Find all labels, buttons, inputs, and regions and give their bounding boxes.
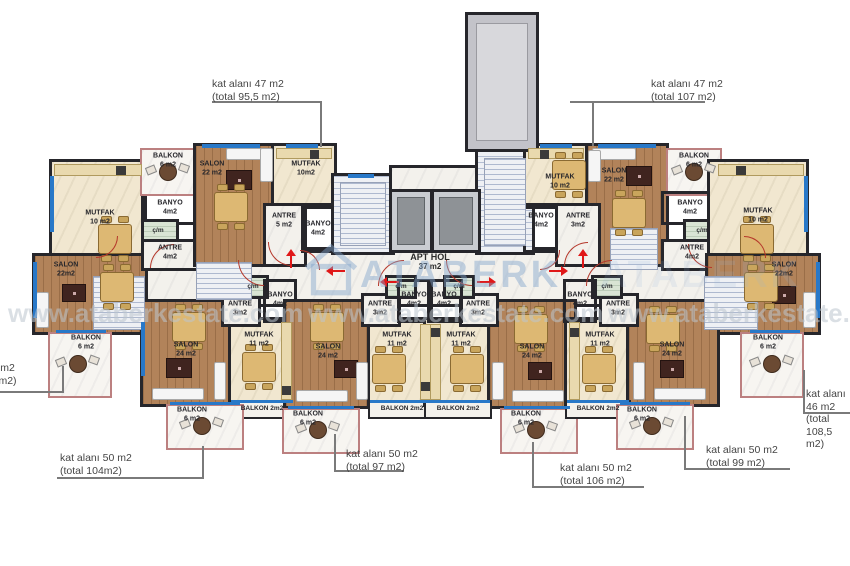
chair [534,306,545,313]
window [231,400,293,403]
hall-name: APT HOL [410,252,450,262]
chair [234,184,245,191]
area-rug [62,284,86,302]
area-rug [166,358,192,378]
room-label-b3-antre: ANTRE 3m2 [466,300,490,318]
window [598,144,656,148]
area-rug [660,360,684,378]
window [620,402,690,405]
room-label-b3-cm: ç/m [453,283,464,291]
window [50,176,54,232]
stove [282,386,291,395]
room-label-b2-balkon2: BALKON 2m2 [381,405,424,413]
direction-arrow-icon [474,277,492,287]
room-label-b1-cm: ç/m [247,283,258,291]
room-core-lobby [392,168,478,194]
area-callout-label: kat alanı 50 m2 (total 99 m2) [706,444,778,469]
chair [392,385,403,392]
room-label-b3-salon: SALON 24 m2 [520,343,545,361]
dining-table [172,312,206,342]
room-label-b3-mutfak: MUTFAK 11 m2 [446,331,475,349]
window [370,400,434,403]
chair [120,264,131,271]
dining-table [450,354,484,384]
chair [649,345,660,352]
window [504,406,570,409]
room-label-b1-balkon2: BALKON 2m2 [241,405,284,413]
room-label-a1-antre: ANTRE 5 m2 [272,212,296,230]
chair [103,303,114,310]
area-rug [528,362,552,380]
chair [245,383,256,390]
area-callout-label: kat alanı 46 m2 (total 108,5 m2) [806,388,850,451]
window [750,330,800,333]
floor-plan: MUTFAK 10 m2SALON 22m2BANYO 4m2ç/mANTRE … [0,0,850,566]
callout-leader [0,391,63,393]
chair [120,303,131,310]
sofa [296,390,348,402]
room-label-al-cm: ç/m [152,227,163,235]
balcony-table [69,355,87,373]
chair [217,223,228,230]
stove [736,166,746,175]
room-label-ar-mutfak: MUTFAK 10 m2 [743,207,772,225]
dining-table [582,354,616,384]
room-label-al-banyo: BANYO 4m2 [157,199,182,217]
stove [431,328,440,337]
room-label-b2-antre: ANTRE 3m2 [368,300,392,318]
room-label-a1-banyo: BANYO 4m2 [305,220,330,238]
room-label-b4-banyo: BANYO 4m2 [567,291,592,309]
chair [615,190,626,197]
direction-arrow-icon [286,254,304,264]
room-label-al-mutfak: MUTFAK 10 m2 [85,209,114,227]
room-label-al-antre: ANTRE 4m2 [158,244,182,262]
window [286,144,318,148]
sofa [492,362,504,400]
room-label-b4-cm: ç/m [601,283,612,291]
kitchen-counter [718,164,804,176]
chair [453,385,464,392]
chair [615,229,626,236]
staircase [484,158,526,246]
window [170,402,240,405]
area-callout-label: kat alanı 50 m2 (total 104m2) [60,452,132,477]
dining-table [214,192,248,222]
room-label-a2-salon: SALON 22 m2 [602,167,627,185]
chair [103,264,114,271]
callout-leader [202,446,204,479]
area-rug [626,166,652,186]
room-label-a2-antre: ANTRE 3m2 [566,212,590,230]
callout-leader [57,477,204,479]
area-callout-label: kat alanı 50 m2 (total 106 m2) [560,462,632,487]
room-label-a1-balkon: BALKON 6 m2 [153,152,183,170]
hall-label: APT HOL 37 m2 [410,252,450,271]
stove [421,382,430,391]
chair [175,304,186,311]
chair [517,306,528,313]
chair [470,385,481,392]
chair [234,223,245,230]
chair [632,229,643,236]
room-label-al-salon: SALON 22m2 [54,261,79,279]
room-label-a2-banyo: BANYO 4m2 [528,212,553,230]
chair [555,152,566,159]
callout-leader [803,370,805,414]
callout-leader [684,416,686,470]
sofa [512,390,564,402]
room-label-b3-balkon2: BALKON 2m2 [437,405,480,413]
room-label-a2-balkon: BALKON 6 m2 [679,152,709,170]
room-label-b2-salon: SALON 24 m2 [316,343,341,361]
chair [313,304,324,311]
elevator [434,192,478,250]
chair [262,383,273,390]
callout-leader [62,366,64,393]
window [33,262,37,318]
chair [217,184,228,191]
callout-leader [334,434,336,472]
window [202,144,260,148]
elevator-shaft [468,15,536,149]
dining-table [646,314,680,344]
dining-table [514,314,548,344]
stove [570,328,579,337]
chair [602,385,613,392]
room-label-b1-mutfak: MUTFAK 11 m2 [244,331,273,349]
window [804,176,808,232]
window [56,330,106,333]
staircase [340,182,386,246]
sofa [152,388,204,400]
room-label-b3-balkon6: BALKON 6 m2 [511,410,541,428]
window [141,322,145,376]
window [540,144,572,148]
chair [375,385,386,392]
chair [764,303,775,310]
room-label-b4-antre: ANTRE 3m2 [606,300,630,318]
sofa [654,388,706,400]
chair [649,306,660,313]
room-label-b3-banyo: BANYO 4m2 [431,291,456,309]
area-rug [334,360,358,378]
direction-arrow-icon [546,266,564,276]
window [816,262,820,318]
room-label-b1-antre: ANTRE 3m2 [228,300,252,318]
sofa [36,292,49,328]
stove [116,166,126,175]
room-label-a1-salon: SALON 22 m2 [200,160,225,178]
sofa [214,362,226,400]
hall-area: 37 m2 [410,262,450,271]
dining-table [372,354,406,384]
dining-table [242,352,276,382]
room-label-b2-mutfak: MUTFAK 11 m2 [382,331,411,349]
callout-leader [532,442,534,488]
chair [118,255,129,262]
window [288,406,354,409]
callout-leader [320,101,322,147]
sofa [633,362,645,400]
room-label-b1-salon: SALON 24 m2 [174,341,199,359]
chair [555,191,566,198]
sofa [260,148,273,182]
sofa [803,292,816,328]
direction-arrow-icon [578,254,596,264]
chair [747,264,758,271]
chair [572,191,583,198]
chair [747,303,758,310]
area-callout-label: kat alanı 47 m2 (total 95,5 m2) [212,78,284,103]
room-label-b4-balkon2: BALKON 2m2 [577,405,620,413]
stove [310,150,319,159]
area-callout-label: kat alanı 46 m2 (total 108,5 m2) [0,362,17,387]
balcony-table [763,355,781,373]
chair [572,152,583,159]
window [348,174,374,178]
room-label-b1-balkon6: BALKON 6 m2 [177,406,207,424]
room-label-ar-cm: ç/m [696,227,707,235]
room-label-ar-banyo: BANYO 4m2 [677,199,702,217]
sofa [356,362,368,400]
area-callout-label: kat alanı 47 m2 (total 107 m2) [651,78,723,103]
room-label-b1-banyo: BANYO 4m2 [267,291,292,309]
room-label-a1-mutfak: MUTFAK 10m2 [291,160,320,178]
area-callout-label: kat alanı 50 m2 (total 97 m2) [346,448,418,473]
sofa [588,150,601,182]
dining-table [612,198,646,228]
dining-table [100,272,134,302]
room-label-a2-mutfak: MUTFAK 10 m2 [545,173,574,191]
kitchen-counter [276,148,332,159]
room-label-al-balkon: BALKON 6 m2 [71,334,101,352]
room-label-b4-mutfak: MUTFAK 11 m2 [585,331,614,349]
chair [666,306,677,313]
room-label-ar-antre: ANTRE 4m2 [680,244,704,262]
stove [540,150,549,159]
elevator [392,192,430,250]
chair [585,385,596,392]
chair [192,304,203,311]
room-label-b4-balkon6: BALKON 6 m2 [627,406,657,424]
direction-arrow-icon [330,266,348,276]
room-label-b4-salon: SALON 24 m2 [660,341,685,359]
window [426,400,490,403]
chair [330,304,341,311]
kitchen-counter [54,164,142,176]
direction-arrow-icon [384,277,402,287]
room-label-ar-salon: SALON 22m2 [772,261,797,279]
room-label-b2-banyo: BANYO 4m2 [401,291,426,309]
chair [118,216,129,223]
dining-table [310,312,344,342]
callout-leader [592,101,594,146]
room-label-b2-balkon6: BALKON 6 m2 [293,410,323,428]
chair [632,190,643,197]
room-label-ar-balkon: BALKON 6 m2 [753,334,783,352]
